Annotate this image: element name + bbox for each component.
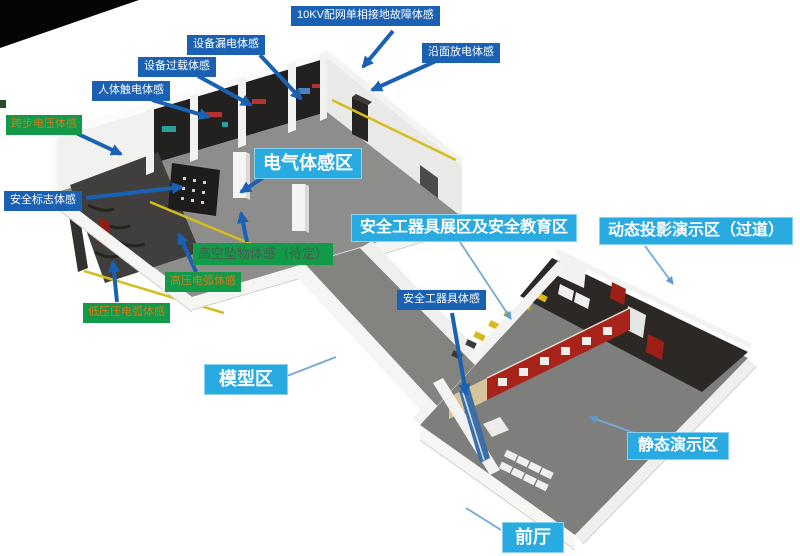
arrow-10kv xyxy=(363,31,393,67)
label-10kv-fault: 10KV配网单相接地故障体感 xyxy=(291,6,440,26)
label-safety-sign: 安全标志体感 xyxy=(4,191,82,211)
label-tool-experience: 安全工器具体感 xyxy=(397,290,486,310)
arrow-surface-discharge xyxy=(372,61,436,90)
leader-model-zone xyxy=(287,357,336,376)
corner-black-artifact xyxy=(0,0,139,48)
label-equip-leakage: 设备漏电体感 xyxy=(187,35,265,55)
label-tool-exhibit-zone: 安全工器具展区及安全教育区 xyxy=(351,214,577,242)
edge-green-artifact xyxy=(0,100,6,108)
label-model-zone: 模型区 xyxy=(204,364,288,395)
leader-dynamic-projection xyxy=(645,246,673,284)
label-electric-zone: 电气体感区 xyxy=(254,148,362,179)
label-human-shock: 人体触电体感 xyxy=(92,81,170,101)
label-front-hall: 前厅 xyxy=(502,522,564,553)
label-falling-object: 高空坠物体感（待定） xyxy=(193,243,333,265)
leader-front-hall xyxy=(466,508,501,530)
label-step-voltage: 跨步电压体感 xyxy=(6,115,82,135)
floor-plan-diagram: 10KV配网单相接地故障体感 设备漏电体感 设备过载体感 人体触电体感 沿面放电… xyxy=(0,0,800,556)
label-lv-arc: 低压压电弧体感 xyxy=(83,303,170,323)
label-hv-arc: 高压电弧体感 xyxy=(165,272,241,292)
label-dynamic-projection: 动态投影演示区（过道） xyxy=(599,217,793,245)
label-equip-overload: 设备过载体感 xyxy=(138,57,216,77)
label-surface-discharge: 沿面放电体感 xyxy=(422,43,500,63)
label-static-demo: 静态演示区 xyxy=(627,432,729,460)
